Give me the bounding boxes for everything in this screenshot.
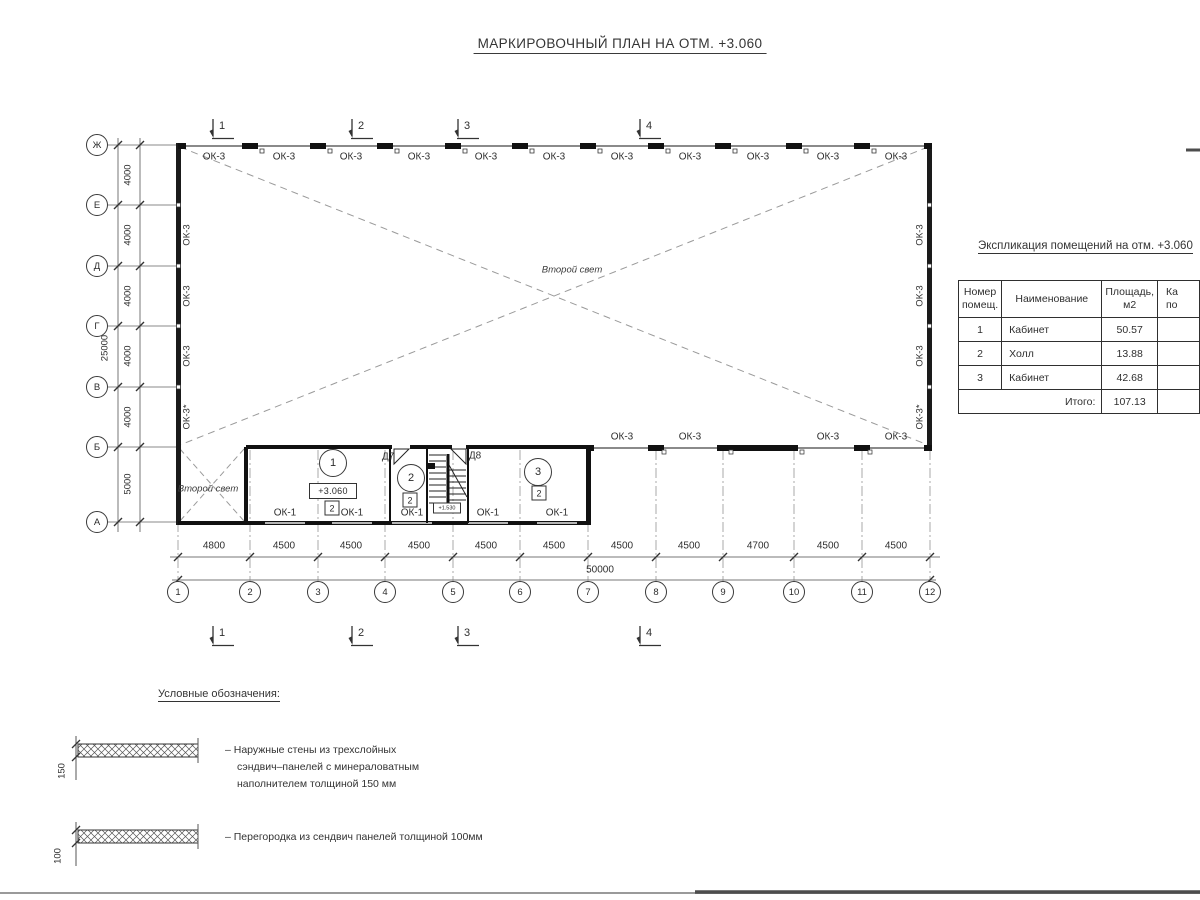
section-marker-label: 1	[219, 120, 225, 132]
table-row: 2 Холл 13.88	[959, 342, 1200, 366]
axis-number: 9	[712, 581, 734, 603]
legend-dim-label: 150	[57, 763, 68, 779]
section-marker-label: 4	[646, 627, 652, 639]
total-label: Итого:	[959, 390, 1102, 414]
dimension-total-label: 25000	[100, 335, 111, 361]
axis-number: 2	[239, 581, 261, 603]
window-label: ОК-3*	[915, 404, 926, 429]
second-light-label: Второй свет	[542, 265, 603, 276]
second-light-label: Второй свет	[178, 484, 239, 495]
rooms-table: Номер помещ. Наименование Площадь, м2 Ка…	[958, 280, 1200, 414]
total-value: 107.13	[1102, 390, 1158, 414]
axis-number: 7	[577, 581, 599, 603]
axis-number: 8	[645, 581, 667, 603]
dimension-label: 4500	[543, 541, 565, 552]
dimension-label: 4500	[408, 541, 430, 552]
window-label: ОК-3	[915, 285, 926, 306]
legend-heading: Условные обозначения:	[158, 688, 280, 702]
dimension-label: 4000	[123, 164, 134, 185]
legend-item-text: – Перегородка из сендвич панелей толщино…	[225, 829, 483, 846]
section-markers-bottom-lines	[212, 626, 661, 646]
dimension-label: 5000	[123, 473, 134, 494]
window-label: ОК-1	[546, 508, 569, 519]
elevation-mark: +3.060	[309, 483, 357, 499]
window-label: ОК-3	[273, 152, 296, 163]
table-row: 1 Кабинет 50.57	[959, 318, 1200, 342]
legend-wall-150-symbol	[72, 736, 198, 780]
cell-name: Холл	[1002, 342, 1102, 366]
window-label: ОК-3	[543, 152, 566, 163]
stairs-rail	[447, 454, 450, 506]
window-label: ОК-1	[401, 508, 424, 519]
window-label: ОК-3	[915, 224, 926, 245]
axis-letter: Е	[86, 194, 108, 216]
window-label: ОК-1	[274, 508, 297, 519]
legend-item-text: – Наружные стены из трехслойных сэндвич–…	[225, 742, 419, 793]
cell-number: 3	[959, 366, 1002, 390]
window-label: ОК-1	[477, 508, 500, 519]
cell-name: Кабинет	[1002, 318, 1102, 342]
table-row: 3 Кабинет 42.68	[959, 366, 1200, 390]
cell-area: 50.57	[1102, 318, 1158, 342]
window-label: ОК-3	[817, 152, 840, 163]
window-label: ОК-3	[679, 432, 702, 443]
section-markers-top-arrows	[210, 129, 641, 138]
window-label: ОК-3	[817, 432, 840, 443]
section-marker-label: 3	[464, 627, 470, 639]
window-label: ОК-3	[679, 152, 702, 163]
window-label: ОК-3	[915, 345, 926, 366]
dimension-label: 4500	[475, 541, 497, 552]
axis-number: 10	[783, 581, 805, 603]
room-badge: 2	[532, 486, 547, 501]
dimension-label: 4000	[123, 406, 134, 427]
door-d7-leaf	[394, 449, 409, 464]
cell-name: Кабинет	[1002, 366, 1102, 390]
window-label: ОК-3	[885, 432, 908, 443]
axis-letter: Б	[86, 436, 108, 458]
window-label: ОК-3	[885, 152, 908, 163]
table-total-row: Итого: 107.13	[959, 390, 1200, 414]
axis-letter: Ж	[86, 134, 108, 156]
dimension-label: 4500	[273, 541, 295, 552]
axis-number: 1	[167, 581, 189, 603]
legend-dim-label: 100	[53, 848, 64, 864]
cell-cut	[1158, 366, 1200, 390]
room-number-1: 1	[319, 449, 347, 477]
axis-number: 6	[509, 581, 531, 603]
section-markers-bottom-arrows	[210, 636, 641, 645]
floor-plan-drawing	[0, 0, 1200, 900]
axis-number: 3	[307, 581, 329, 603]
window-label: ОК-3	[340, 152, 363, 163]
page-title: МАРКИРОВОЧНЫЙ ПЛАН НА ОТМ. +3.060	[474, 36, 767, 54]
dimension-ticks	[114, 141, 934, 584]
dimension-label: 4000	[123, 345, 134, 366]
dimension-label: 4700	[747, 541, 769, 552]
col-header-name: Наименование	[1002, 281, 1102, 318]
window-label: ОК-3*	[182, 404, 193, 429]
cell-cut	[1158, 390, 1200, 414]
partition-room3-right	[586, 447, 591, 525]
section-marker-label: 3	[464, 120, 470, 132]
door-label-d8: Д8	[469, 451, 481, 462]
right-wall	[927, 143, 932, 449]
section-marker-label: 4	[646, 120, 652, 132]
axis-letter: В	[86, 376, 108, 398]
stairs-post	[428, 463, 435, 469]
cell-cut	[1158, 318, 1200, 342]
room-number-2: 2	[397, 464, 425, 492]
room-badge: 2	[325, 501, 340, 516]
axis-number: 11	[851, 581, 873, 603]
axis-letter: Д	[86, 255, 108, 277]
partition-room1-left	[244, 447, 248, 525]
window-label: ОК-3	[475, 152, 498, 163]
col-header-area: Площадь, м2	[1102, 281, 1158, 318]
dimension-label: 4000	[123, 224, 134, 245]
window-label: ОК-3	[408, 152, 431, 163]
col-header-number: Номер помещ.	[959, 281, 1002, 318]
window-label: ОК-3	[611, 152, 634, 163]
col-header-cut: Ка по	[1158, 281, 1200, 318]
axis-number: 4	[374, 581, 396, 603]
dimension-label: 4500	[611, 541, 633, 552]
dimension-label: 4500	[678, 541, 700, 552]
cell-area: 42.68	[1102, 366, 1158, 390]
table-header-row: Номер помещ. Наименование Площадь, м2 Ка…	[959, 281, 1200, 318]
stair-elevation-mark: +1.530	[433, 503, 461, 514]
legend-wall-100-symbol	[72, 822, 198, 866]
dimension-label: 4500	[817, 541, 839, 552]
axis-number: 5	[442, 581, 464, 603]
window-label: ОК-3	[611, 432, 634, 443]
axis-letter: Г	[86, 315, 108, 337]
cell-number: 2	[959, 342, 1002, 366]
dimension-label: 4000	[123, 285, 134, 306]
door-label-d7: Д7	[382, 452, 394, 463]
axis-letter: А	[86, 511, 108, 533]
table-heading: Экспликация помещений на отм. +3.060	[978, 240, 1193, 254]
axis-number: 12	[919, 581, 941, 603]
drawing-sheet: МАРКИРОВОЧНЫЙ ПЛАН НА ОТМ. +3.060 ОК-3 О…	[0, 0, 1200, 900]
window-label: ОК-3	[182, 345, 193, 366]
section-markers-top-lines	[212, 119, 661, 139]
cell-area: 13.88	[1102, 342, 1158, 366]
dimension-label: 4500	[885, 541, 907, 552]
window-label: ОК-1	[341, 508, 364, 519]
second-light-cross-hall	[180, 147, 928, 445]
window-label: ОК-3	[203, 152, 226, 163]
window-label: ОК-3	[182, 224, 193, 245]
section-marker-label: 1	[219, 627, 225, 639]
cell-number: 1	[959, 318, 1002, 342]
window-label: ОК-3	[182, 285, 193, 306]
left-wall	[176, 143, 181, 525]
section-marker-label: 2	[358, 120, 364, 132]
dimension-label: 4500	[340, 541, 362, 552]
dimension-lines	[118, 138, 940, 580]
section-marker-label: 2	[358, 627, 364, 639]
dimension-label: 4800	[203, 541, 225, 552]
room-badge: 2	[403, 493, 418, 508]
cell-cut	[1158, 342, 1200, 366]
room-number-3: 3	[524, 458, 552, 486]
dimension-total-label: 50000	[586, 565, 614, 576]
window-label: ОК-3	[747, 152, 770, 163]
